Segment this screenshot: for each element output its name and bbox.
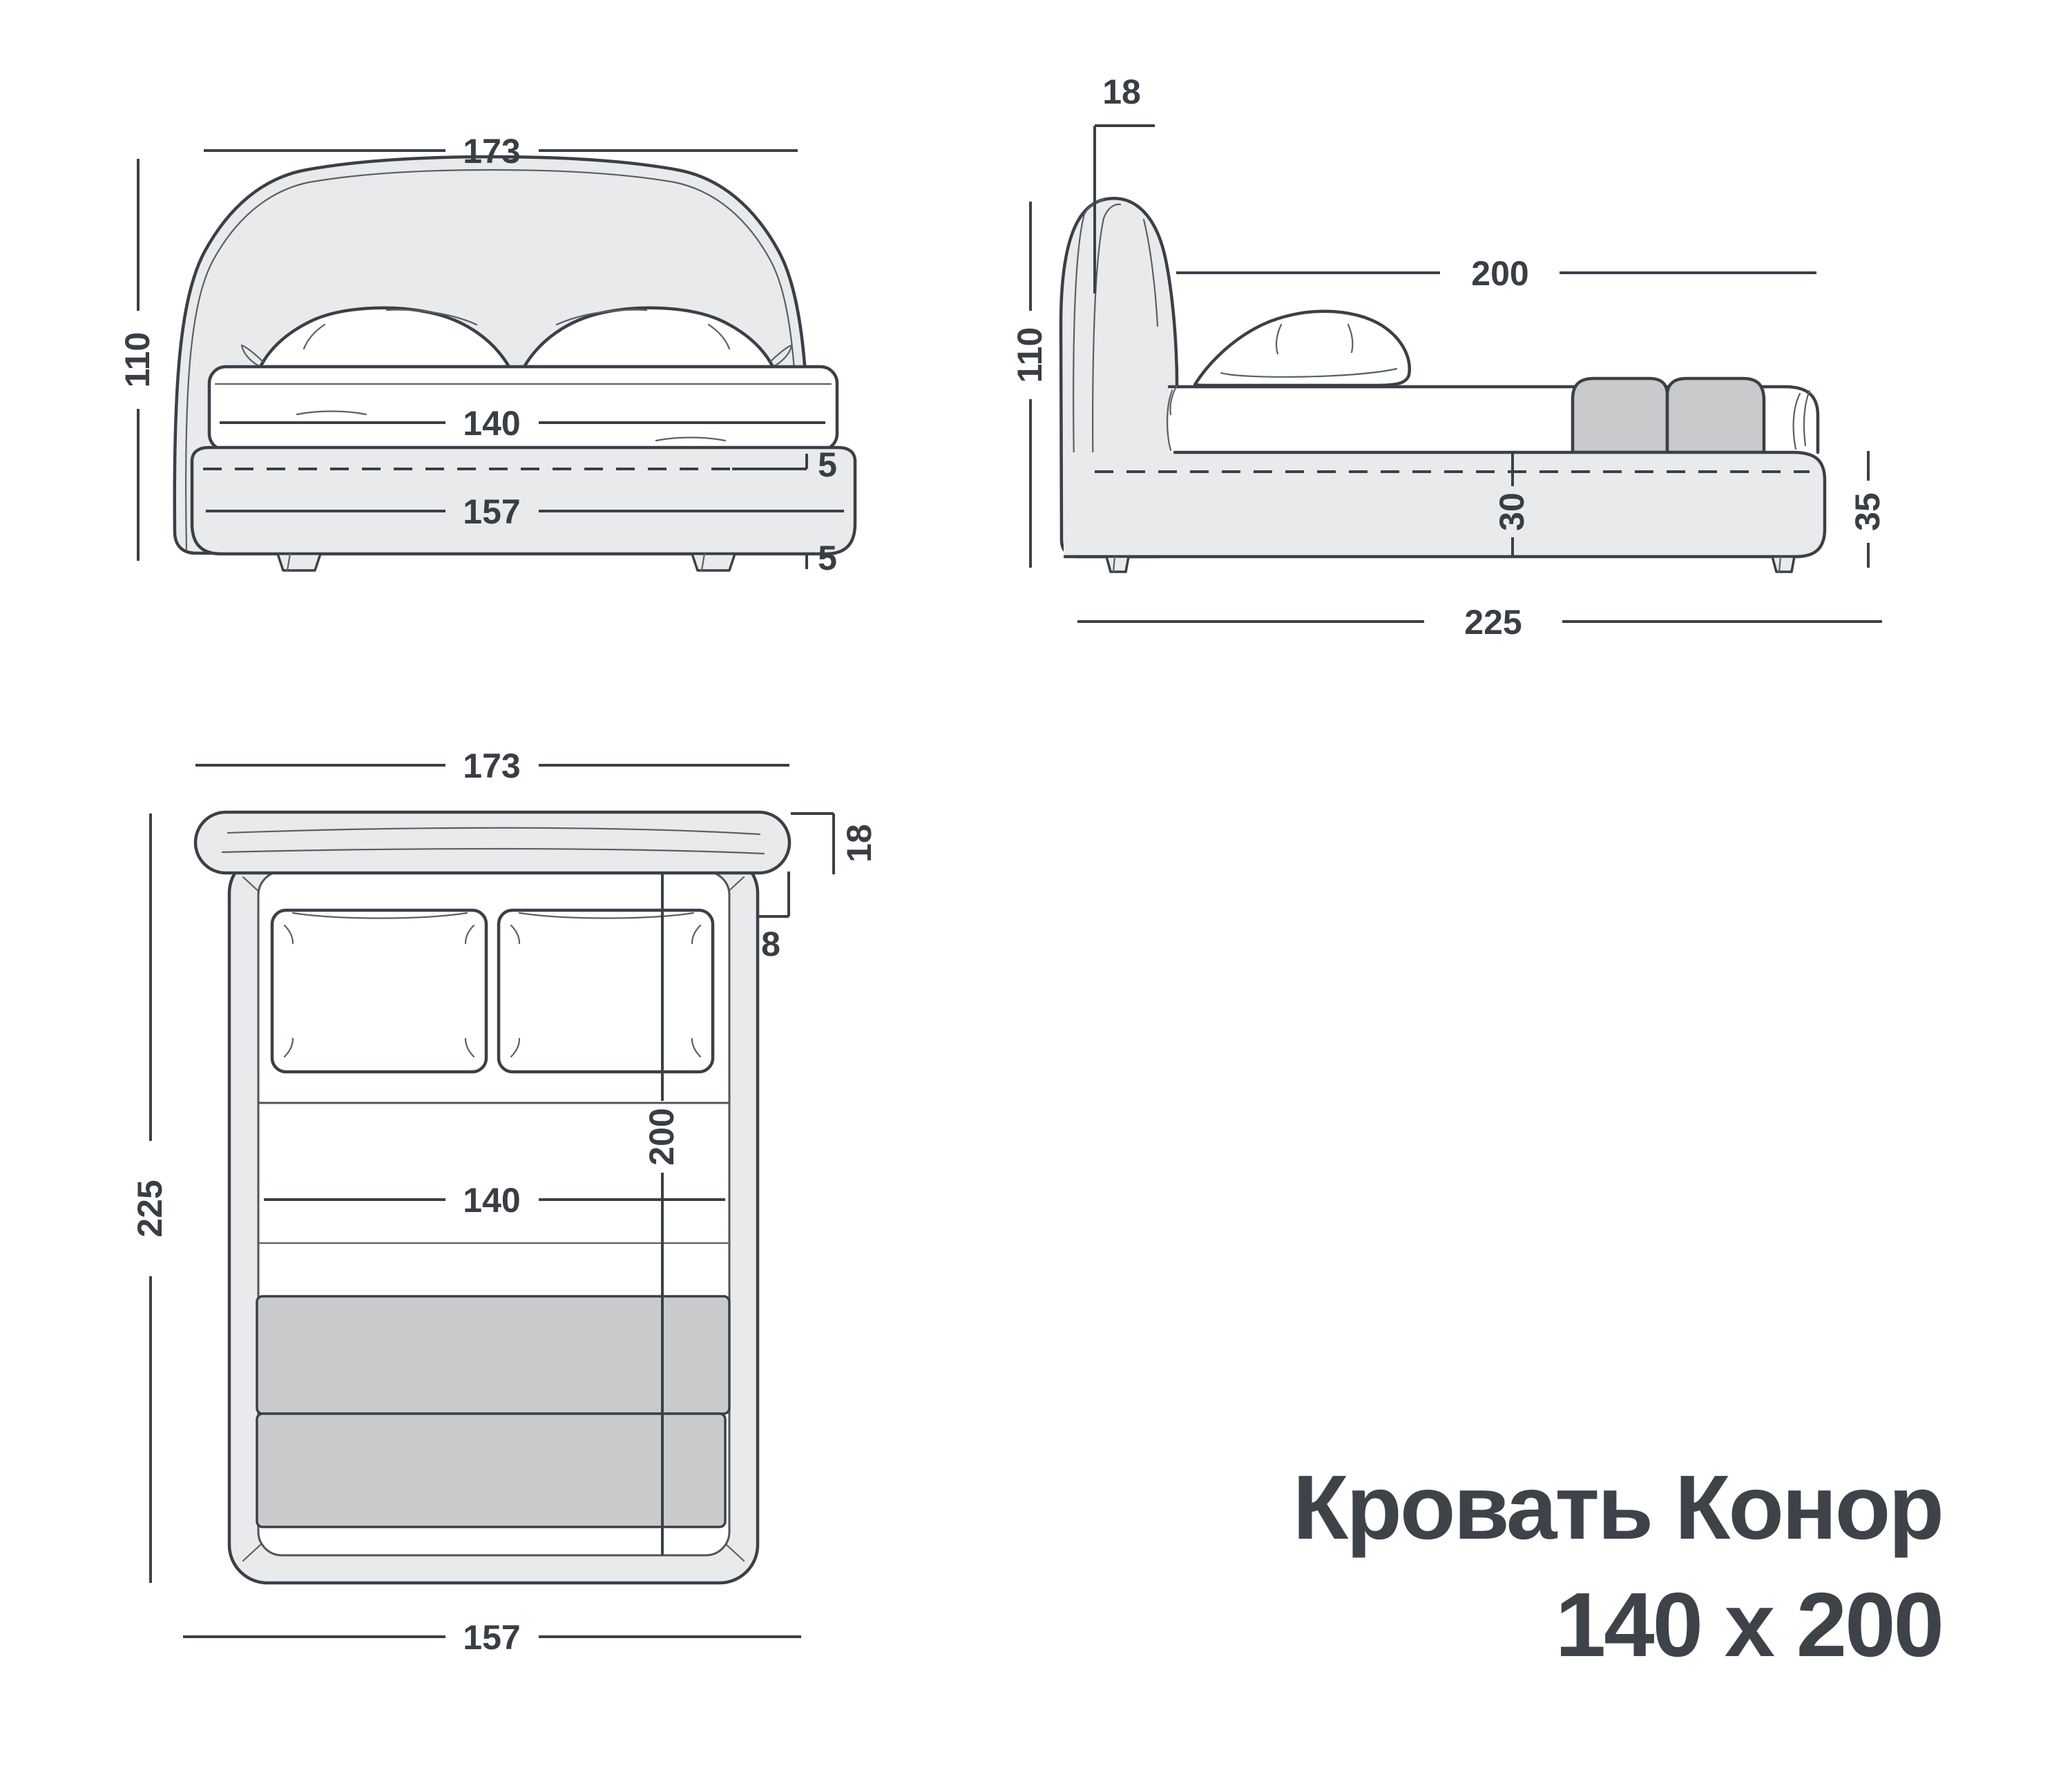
side-sleep-length-label: 200 <box>1471 254 1528 293</box>
front-mattress-width-label: 140 <box>463 404 520 443</box>
side-blanket-panel-1 <box>1573 378 1667 452</box>
plan-blanket-band-1 <box>257 1296 729 1414</box>
front-mattress <box>209 367 837 450</box>
side-length-label: 225 <box>1464 603 1522 642</box>
plan-overhang-label: 8 <box>761 925 780 963</box>
front-base-width-label: 157 <box>463 492 520 531</box>
front-leg-right <box>692 554 735 570</box>
plan-length-label: 225 <box>131 1180 169 1237</box>
plan-base-width-label: 157 <box>463 1618 520 1657</box>
product-title-line1: Кровать Конор <box>1293 1457 1942 1558</box>
side-height-label: 110 <box>1010 327 1049 383</box>
side-headboard-depth-label: 18 <box>1102 73 1141 111</box>
plan-dim-headboard-bracket <box>791 814 834 874</box>
front-view: 173 110 140 157 5 5 <box>118 132 855 577</box>
plan-mattress-width-label: 140 <box>463 1181 520 1220</box>
plan-dim-overhang-bracket <box>758 872 789 916</box>
side-view: 18 110 200 30 35 225 <box>1010 73 1887 642</box>
side-leg-right <box>1772 557 1794 572</box>
front-height-label: 110 <box>118 332 157 388</box>
front-base <box>192 448 855 554</box>
plan-pillow-left <box>272 910 486 1072</box>
plan-sleep-length-label: 200 <box>642 1108 681 1165</box>
side-leg-left <box>1106 557 1129 572</box>
technical-drawing: 173 110 140 157 5 5 <box>0 0 2072 1788</box>
front-offset-label: 5 <box>818 445 837 484</box>
plan-blanket-band-2 <box>257 1414 725 1527</box>
front-dim-leg-leader <box>774 554 807 569</box>
front-leg-left <box>278 554 320 570</box>
side-base-height-label: 30 <box>1493 492 1531 531</box>
plan-pillow-right <box>499 910 713 1072</box>
front-width-label: 173 <box>463 132 520 171</box>
side-base-total-label: 35 <box>1848 492 1887 531</box>
product-title-line2: 140 x 200 <box>1555 1574 1942 1675</box>
plan-width-label: 173 <box>463 747 520 785</box>
front-leg-height-label: 5 <box>818 539 837 577</box>
side-blanket-panel-2 <box>1667 378 1764 452</box>
plan-headboard-depth-label: 18 <box>840 824 879 863</box>
product-title: Кровать Конор 140 x 200 <box>1293 1457 1942 1675</box>
side-base-fill <box>1064 452 1825 557</box>
plan-headboard <box>195 812 789 873</box>
plan-view: 173 18 8 225 200 140 157 <box>131 747 879 1657</box>
